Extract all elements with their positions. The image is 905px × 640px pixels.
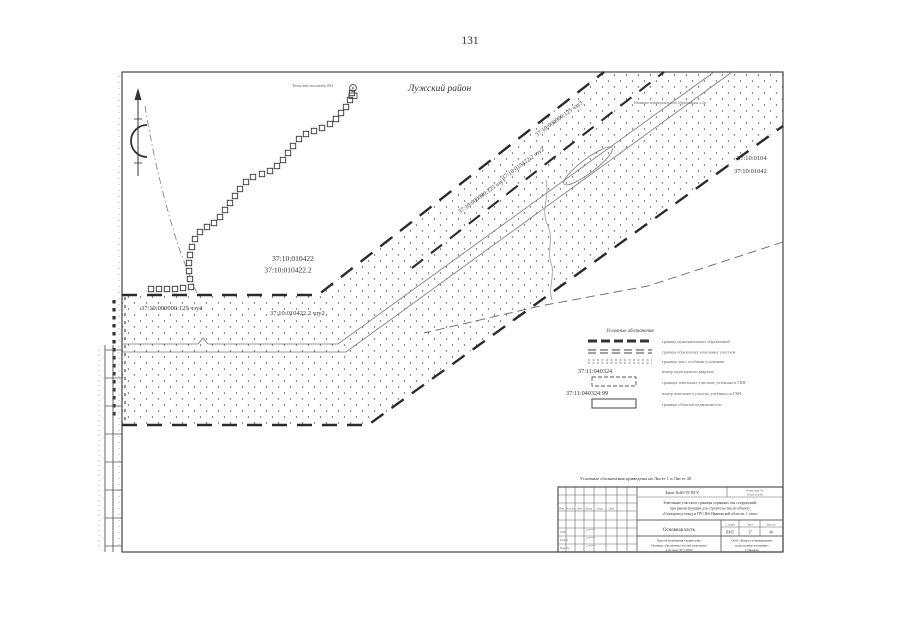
tb-stage-label: Стадия	[725, 523, 735, 527]
tb-project-3: «Газопровод-отвод и ГРС Юг Ивановской об…	[662, 512, 757, 517]
legend-label: номер кадастрового квартала	[662, 369, 714, 374]
tb-company-3: г. Иваново	[745, 548, 760, 552]
legend: Условные обозначения граница муниципальн…	[566, 329, 746, 408]
tb-staff-rows: ГИП Разраб. Н.контр.	[560, 529, 595, 550]
municipal-boundary-line	[145, 106, 197, 293]
title-block: Заказ №40-19-ПГУ Взам. инв. № Подп. и да…	[558, 487, 783, 552]
tb-doc-title-1: Чертёж межевания территории.	[657, 539, 701, 543]
tb-sheets-label: Листов	[766, 523, 776, 527]
svg-text:Подп.: Подп.	[597, 508, 604, 511]
tb-project-2: при реконструкции для строительства по о…	[670, 507, 750, 511]
svg-text:Кол.уч: Кол.уч	[567, 508, 576, 511]
legend-label: граница образуемых земельных участков	[662, 350, 735, 355]
survey-monument-icon	[349, 85, 357, 99]
legend-quarter-number: 37:11:040324	[578, 368, 612, 375]
svg-text:ГИП: ГИП	[560, 531, 566, 534]
north-arrow-icon	[131, 88, 147, 176]
footnote: Условные обозначения приведены на Листе …	[580, 476, 692, 481]
cadastral-plan-svg: 131	[0, 0, 905, 640]
tb-column-headers: Изм. Кол.уч Лист №док. Подп. Дата	[559, 508, 615, 511]
district-label: Лужский район	[407, 83, 472, 94]
legend-symbol-realestate-object	[592, 399, 636, 408]
tb-inv2: Подп. и дата	[747, 493, 764, 497]
svg-text:Изм.: Изм.	[559, 508, 565, 511]
svg-text:№док.: №док.	[585, 508, 593, 511]
tb-section: Основная часть	[663, 528, 696, 533]
legend-label: границы земельных участков, учтённые в Г…	[662, 380, 746, 386]
tb-sheets-value: 40	[769, 531, 773, 535]
legend-symbol-special-zone-boundary	[588, 360, 652, 363]
legend-title: Условные обозначения	[606, 329, 654, 334]
svg-text:Дата: Дата	[609, 508, 615, 511]
tb-sheet-value: 17	[748, 531, 752, 535]
cadastral-quarter-point-chain	[151, 93, 352, 289]
label-chzu2-left: 37:10:010422.2 чзу2	[270, 310, 325, 317]
svg-text:Разраб.: Разраб.	[560, 539, 569, 542]
page-number: 131	[461, 35, 479, 47]
tb-doc-title-2: Границы образуемых частей земельных	[651, 544, 707, 548]
svg-text:Лист: Лист	[577, 508, 584, 511]
tb-company-2: кадастровые компании»	[735, 544, 769, 548]
map-top-note: Точка вне масштаба 004	[292, 83, 333, 88]
tb-project-1: Земельные участки и границы охранных зон…	[663, 501, 757, 506]
scanned-drawing-page: 131	[0, 0, 905, 640]
legend-symbol-formed-parcel-boundary	[588, 350, 652, 353]
legend-label: границы объектов недвижимости	[662, 402, 722, 407]
label-parcel2: 37:10:010422.2	[264, 266, 312, 275]
label-right-top1: 37:10:0104	[737, 155, 767, 162]
svg-text:Н.контр.: Н.контр.	[560, 547, 570, 550]
road-ladder	[99, 345, 122, 552]
map-top-right-note: Название муниципального образования л.2в	[634, 101, 706, 105]
tb-order: Заказ №40-19-ПГУ	[665, 490, 699, 495]
legend-label: номер земельного участка, учтённого в ГК…	[662, 391, 741, 397]
label-right-top2: 37:10:01042	[734, 168, 767, 175]
label-quarter: 37:10:010422	[272, 254, 314, 263]
tb-stage-value: ПМТ	[726, 531, 735, 535]
label-chzu4: 37:10:000000:125 чзу4	[141, 305, 203, 312]
tb-sheet-label: Лист	[747, 523, 754, 527]
legend-label: граница муниципальных образований	[662, 339, 730, 344]
legend-parcel-number: 37:11:040324:99	[566, 390, 608, 397]
legend-label: границы зон с особыми условиями	[662, 359, 725, 364]
tb-doc-title-3: участков. М 1:2000	[666, 548, 693, 552]
legend-symbol-gkn-parcel	[592, 377, 636, 386]
